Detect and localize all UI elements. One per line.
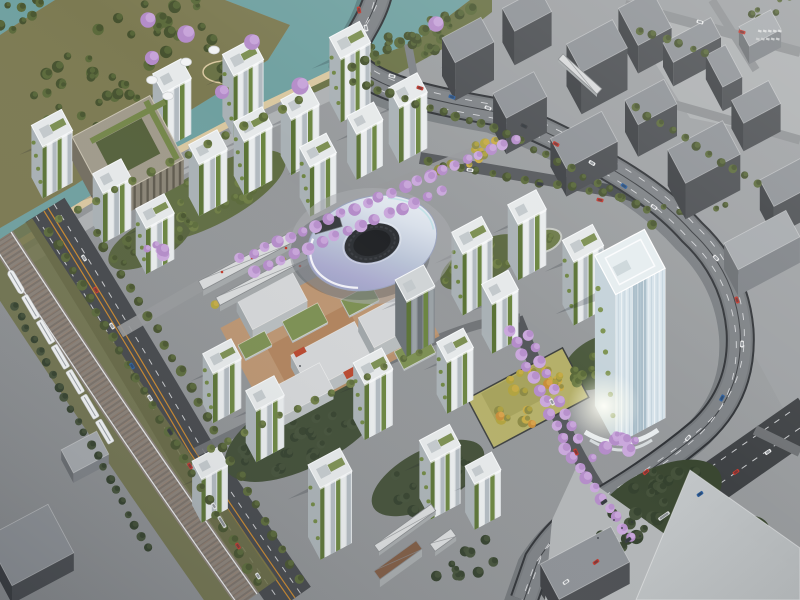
aerial-render-canvas (0, 0, 800, 600)
masterplan-aerial-view (0, 0, 800, 600)
light-haze (0, 0, 800, 600)
